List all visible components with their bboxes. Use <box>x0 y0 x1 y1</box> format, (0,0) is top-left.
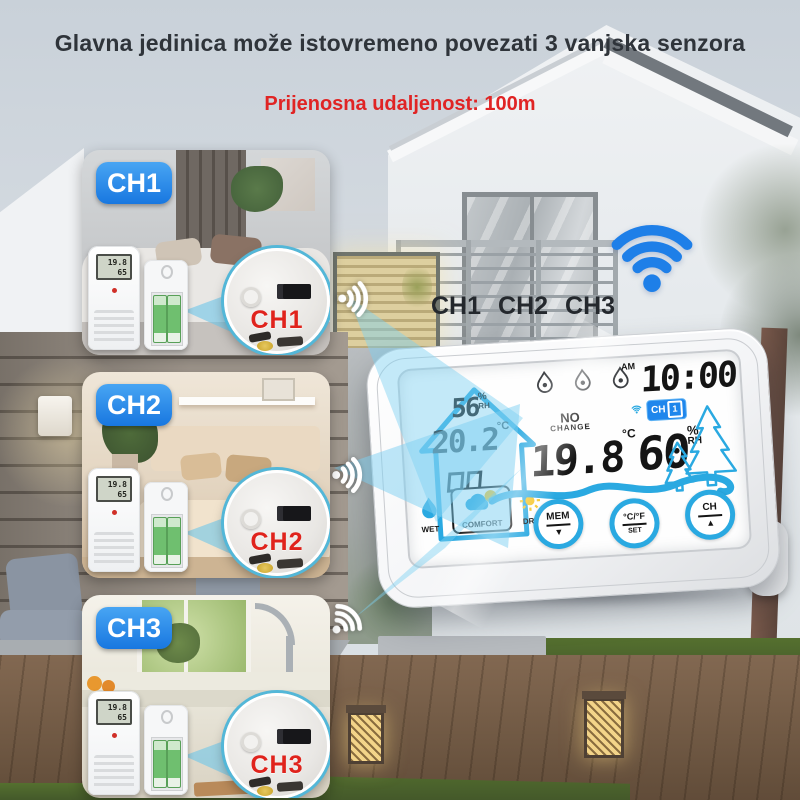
sensor-lcd-top: 19.8 <box>98 703 127 713</box>
battery-bay <box>151 292 183 346</box>
sensor-back-ch3 <box>144 705 188 795</box>
water-drop-icon <box>420 495 437 520</box>
wet-label: WET <box>416 524 444 535</box>
wet-indicator: WET <box>414 495 444 535</box>
product-infographic: Glavna jedinica može istovremeno povezat… <box>0 0 800 800</box>
channel-panel-ch1: CH1 19.8 65 CH1 <box>82 150 330 355</box>
sensor-led <box>112 288 117 293</box>
house-wall-left <box>0 148 84 362</box>
reset-knob <box>241 509 261 529</box>
sensor-signal-icon-ch2 <box>328 450 374 500</box>
sensor-lcd: 19.8 65 <box>96 476 132 502</box>
zoom-channel-label-ch2: CH2 <box>227 528 327 557</box>
lantern-cap <box>582 691 626 699</box>
photo-detail <box>180 452 222 481</box>
station-display: 56%RH 20.2°C WET CO <box>397 349 753 570</box>
sensor-lcd-bottom: 65 <box>98 713 127 723</box>
lantern-cap <box>346 705 386 713</box>
zoom-circle-ch3: CH3 <box>224 693 330 798</box>
hanger-hole <box>161 487 173 501</box>
sensor-led <box>112 733 117 738</box>
battery-bay <box>151 514 183 568</box>
sensor-front-ch2: 19.8 65 <box>88 468 140 572</box>
sensor-lcd: 19.8 65 <box>96 699 132 725</box>
sensor-vents <box>94 755 134 789</box>
zoom-channel-label-ch3: CH3 <box>227 751 327 780</box>
deck-lantern <box>348 712 384 764</box>
screw <box>277 336 304 347</box>
lantern-lattice <box>587 701 621 755</box>
sensor-vents <box>94 310 134 344</box>
sensor-front-ch1: 19.8 65 <box>88 246 140 350</box>
aa-battery <box>167 295 181 343</box>
channel-signal-icon <box>629 403 644 415</box>
sensor-vents <box>94 532 134 566</box>
aa-battery <box>153 517 167 565</box>
unit-set-button: °C/°F SET <box>608 497 661 550</box>
weather-station: 56%RH 20.2°C WET CO <box>364 326 781 610</box>
channel-button-label: CH <box>702 502 717 513</box>
comfort-label: COMFORT <box>454 518 510 530</box>
channel-label-ch3: CH3 <box>565 292 615 321</box>
aa-battery <box>153 295 167 343</box>
aa-battery <box>167 517 181 565</box>
aa-battery <box>167 740 181 788</box>
sensor-back-ch2 <box>144 482 188 572</box>
deck-lantern <box>584 698 624 758</box>
unit-button-label: °C/°F <box>623 512 645 522</box>
channel-list: CH1 CH2 CH3 <box>431 292 615 321</box>
channel-panel-ch2: CH2 19.8 65 CH2 <box>82 372 330 578</box>
mem-button-arrow: ▼ <box>546 523 571 537</box>
battery-edge <box>257 341 273 351</box>
zoom-circle-ch2: CH2 <box>224 470 330 576</box>
wifi-icon <box>596 196 708 304</box>
mem-button-label: MEM <box>546 511 570 522</box>
battery-bay <box>151 737 183 791</box>
battery-edge <box>257 563 273 573</box>
reset-knob <box>241 287 261 307</box>
drop-indicator-row <box>535 365 630 395</box>
channel-switch <box>277 729 311 744</box>
screw <box>277 781 304 792</box>
hanger-hole <box>161 710 173 724</box>
sensor-signal-icon-ch1 <box>333 273 381 325</box>
railing-top <box>396 240 618 247</box>
indoor-humidity-sub: RH <box>478 402 490 411</box>
drop-indicator-icon <box>535 370 554 395</box>
channel-switch <box>277 284 311 299</box>
indoor-humidity-value: 56 <box>451 393 479 425</box>
channel-badge-ch1: CH1 <box>96 162 172 204</box>
zoom-channel-label-ch1: CH1 <box>227 306 327 335</box>
indoor-temperature: 20.2°C <box>430 421 511 462</box>
sensor-back-ch1 <box>144 260 188 350</box>
channel-switch <box>277 506 311 521</box>
sensor-lcd-bottom: 65 <box>98 268 127 278</box>
clock-meridiem: AM <box>621 361 636 372</box>
page-title: Glavna jedinica može istovremeno povezat… <box>0 30 800 57</box>
window-plant <box>402 264 432 310</box>
channel-label-ch2: CH2 <box>498 292 548 321</box>
photo-detail <box>262 378 296 401</box>
photo-detail <box>82 672 330 690</box>
set-button-label: SET <box>623 523 648 535</box>
sensor-lcd: 19.8 65 <box>96 254 132 280</box>
aa-battery <box>153 740 167 788</box>
indoor-temp-value: 20.2 <box>431 421 498 461</box>
screw <box>277 558 304 569</box>
sensor-lcd-top: 19.8 <box>98 258 127 268</box>
indoor-humidity: 56%RH <box>450 392 491 424</box>
reset-knob <box>241 732 261 752</box>
range-subtitle: Prijenosna udaljenost: 100m <box>0 93 800 116</box>
zoom-circle-ch1: CH1 <box>224 248 330 354</box>
sensor-lcd-bottom: 65 <box>98 490 127 500</box>
battery-edge <box>257 786 273 796</box>
channel-badge-ch3: CH3 <box>96 607 172 649</box>
channel-label-ch1: CH1 <box>431 292 481 321</box>
channel-button-arrow: ▲ <box>698 513 723 527</box>
channel-panel-ch3: CH3 19.8 65 CH3 <box>82 595 330 798</box>
sensor-front-ch3: 19.8 65 <box>88 691 140 795</box>
hanger-hole <box>161 265 173 279</box>
drop-indicator-icon <box>573 368 592 393</box>
wall-lamp <box>38 396 72 436</box>
sensor-lcd-top: 19.8 <box>98 480 127 490</box>
indoor-section: 56%RH 20.2°C WET CO <box>412 377 546 550</box>
sensor-led <box>112 510 117 515</box>
channel-badge-ch2: CH2 <box>96 384 172 426</box>
indoor-temp-unit: °C <box>497 421 510 433</box>
lantern-lattice <box>351 715 381 761</box>
